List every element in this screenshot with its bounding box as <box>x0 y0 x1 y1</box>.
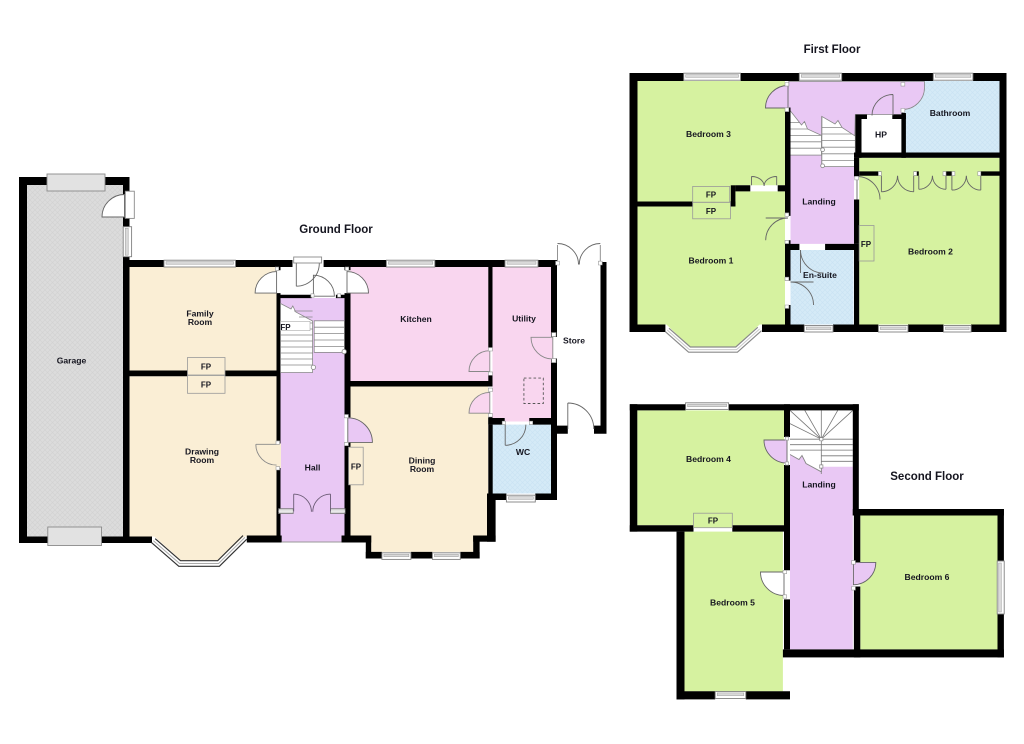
svg-text:Kitchen: Kitchen <box>400 314 432 324</box>
svg-text:Bedroom 1: Bedroom 1 <box>689 256 734 266</box>
svg-text:FP: FP <box>351 463 362 472</box>
svg-text:WC: WC <box>516 447 530 457</box>
svg-text:FP: FP <box>861 240 872 249</box>
svg-text:FP: FP <box>706 207 717 216</box>
svg-text:Bedroom 3: Bedroom 3 <box>686 129 731 139</box>
svg-text:Bedroom 4: Bedroom 4 <box>686 454 731 464</box>
svg-text:FP: FP <box>201 363 212 372</box>
svg-text:Bedroom 6: Bedroom 6 <box>905 572 950 582</box>
svg-text:Landing: Landing <box>802 197 835 207</box>
svg-text:FP: FP <box>280 323 291 332</box>
svg-text:Utility: Utility <box>512 314 536 324</box>
svg-text:Hall: Hall <box>305 463 321 473</box>
svg-text:Landing: Landing <box>802 480 835 490</box>
svg-text:Room: Room <box>410 464 435 474</box>
svg-text:Room: Room <box>190 455 215 465</box>
svg-text:Room: Room <box>188 317 213 327</box>
svg-text:En-suite: En-suite <box>803 270 837 280</box>
svg-text:HP: HP <box>875 130 887 140</box>
svg-text:Second Floor: Second Floor <box>890 471 964 483</box>
svg-text:Store: Store <box>563 336 585 346</box>
svg-text:Bathroom: Bathroom <box>930 108 971 118</box>
svg-text:First Floor: First Floor <box>804 44 861 56</box>
svg-text:Ground Floor: Ground Floor <box>299 224 373 236</box>
svg-text:Bedroom 2: Bedroom 2 <box>908 247 953 257</box>
svg-text:Bedroom 5: Bedroom 5 <box>710 598 755 608</box>
svg-text:FP: FP <box>201 381 212 390</box>
svg-text:FP: FP <box>706 191 717 200</box>
svg-text:Garage: Garage <box>57 356 87 366</box>
svg-text:FP: FP <box>708 517 719 526</box>
